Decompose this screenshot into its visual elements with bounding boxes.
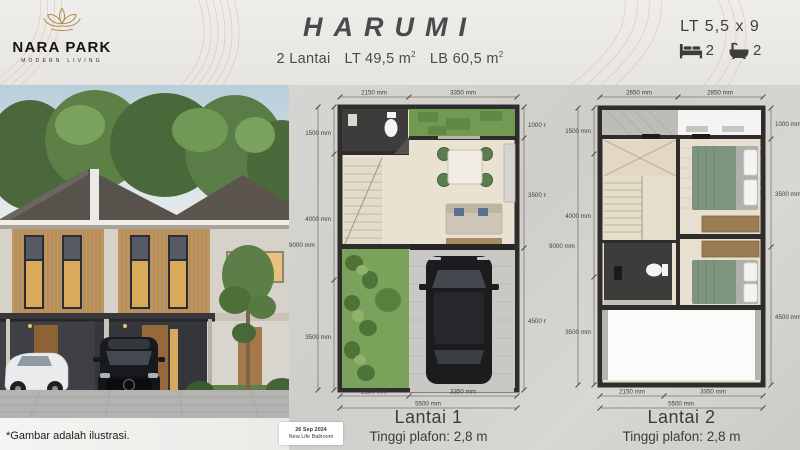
dim-label: 9000 mm: [289, 242, 315, 249]
dim-label: 2850 mm: [707, 90, 733, 97]
sink: [614, 266, 622, 280]
plan2-ceiling-height: Tinggi plafon: 2,8 m: [600, 429, 763, 444]
pavement: [0, 390, 289, 418]
toilet: [385, 119, 398, 137]
stairs: [344, 158, 382, 246]
event-date: 26 Sep 2024: [279, 427, 343, 433]
dresser: [702, 241, 759, 257]
nara-park-logo: NARA PARK MODERN LIVING: [10, 7, 114, 64]
sofa: [446, 204, 502, 244]
dim-label: 4500 mm: [528, 318, 546, 325]
roof-deck: [602, 110, 678, 137]
plan1-title: Lantai 1: [340, 407, 517, 428]
house-specs: 2 LantaiLT 49,5 m2LB 60,5 m2: [245, 50, 535, 67]
dim-label: 1500 mm: [305, 130, 331, 137]
floorplan-lantai1: 2150 mm 3350 mm 9000 mm 1500 mm 4000 mm …: [288, 88, 546, 418]
dim-label: 3350 mm: [700, 389, 726, 396]
dim-label: 2150 mm: [361, 90, 387, 97]
dim-label: 1000 mm: [775, 121, 800, 128]
dim-label: 2650 mm: [626, 90, 652, 97]
dim-label: 1000 mm: [528, 122, 546, 129]
sink: [348, 114, 357, 126]
bed-count-item: 2: [679, 42, 714, 59]
brand-name: NARA PARK: [10, 39, 114, 56]
plan1-title-block: Lantai 1 Tinggi plafon: 2,8 m: [340, 407, 517, 444]
house-type-title: HARUMI: [245, 12, 535, 43]
dim-label: 9000 mm: [549, 243, 575, 250]
dim-label: 1500 mm: [565, 128, 591, 135]
brand-tagline: MODERN LIVING: [10, 58, 114, 64]
bath-count: 2: [753, 42, 761, 59]
floorplan-lantai2: 2650 mm 2850 mm 9000 mm 1500 mm 4000 mm …: [546, 88, 800, 418]
dim-label: 3350 mm: [450, 389, 476, 396]
dresser: [702, 216, 759, 232]
dim-label: 2150 mm: [361, 389, 387, 396]
title-block: HARUMI 2 LantaiLT 49,5 m2LB 60,5 m2: [245, 12, 535, 67]
garage-beam: [410, 244, 515, 250]
bath-icon: [728, 42, 750, 59]
black-car: [93, 337, 165, 397]
toilet: [646, 264, 662, 277]
room-counts: 2 2: [645, 42, 795, 59]
dim-label: 2150 mm: [619, 389, 645, 396]
spec-building-sup: 2: [499, 50, 504, 59]
spec-land-sup: 2: [411, 50, 416, 59]
event-stamp: 26 Sep 2024 New Life Ballroom: [279, 422, 343, 445]
spec-building-area: LB 60,5 m: [430, 51, 499, 67]
brochure-slide: NARA PARK MODERN LIVING HARUMI 2 LantaiL…: [0, 0, 800, 450]
lot-size: LT 5,5 x 9: [645, 18, 795, 36]
header-band: NARA PARK MODERN LIVING HARUMI 2 LantaiL…: [0, 0, 800, 85]
plan2-title-block: Lantai 2 Tinggi plafon: 2,8 m: [600, 407, 763, 444]
event-venue: New Life Ballroom: [279, 434, 343, 440]
spec-floors: 2 Lantai: [277, 51, 331, 67]
bush: [375, 288, 401, 312]
house-render-image: [0, 85, 289, 418]
dim-label: 3350 mm: [450, 90, 476, 97]
spec-land-area: LT 49,5 m: [345, 51, 412, 67]
dim-label: 4000 mm: [565, 213, 591, 220]
photo-caption: *Gambar adalah ilustrasi.: [6, 430, 130, 442]
lotus-icon: [42, 7, 82, 33]
plan2-bathroom: [604, 243, 672, 300]
kitchen-counter: [504, 144, 515, 202]
dim-label: 4000 mm: [305, 216, 331, 223]
plan1-ceiling-height: Tinggi plafon: 2,8 m: [340, 429, 517, 444]
plan2-title: Lantai 2: [600, 407, 763, 428]
bedroom2: [692, 241, 759, 304]
void-over-carport: [602, 310, 761, 380]
plan1-garden-side: [342, 249, 409, 388]
dim-label: 3500 mm: [528, 192, 546, 199]
dim-label: 3500 mm: [305, 334, 331, 341]
lot-block: LT 5,5 x 9 2: [645, 18, 795, 59]
dim-label: 3500 mm: [565, 329, 591, 336]
bed-count: 2: [706, 42, 714, 59]
stairs-upper: [604, 140, 676, 240]
car-topview: [419, 256, 499, 384]
bath-count-item: 2: [728, 42, 761, 59]
dim-label: 4500 mm: [775, 314, 800, 321]
dim-label: 3500 mm: [775, 191, 800, 198]
bed-icon: [679, 42, 703, 59]
